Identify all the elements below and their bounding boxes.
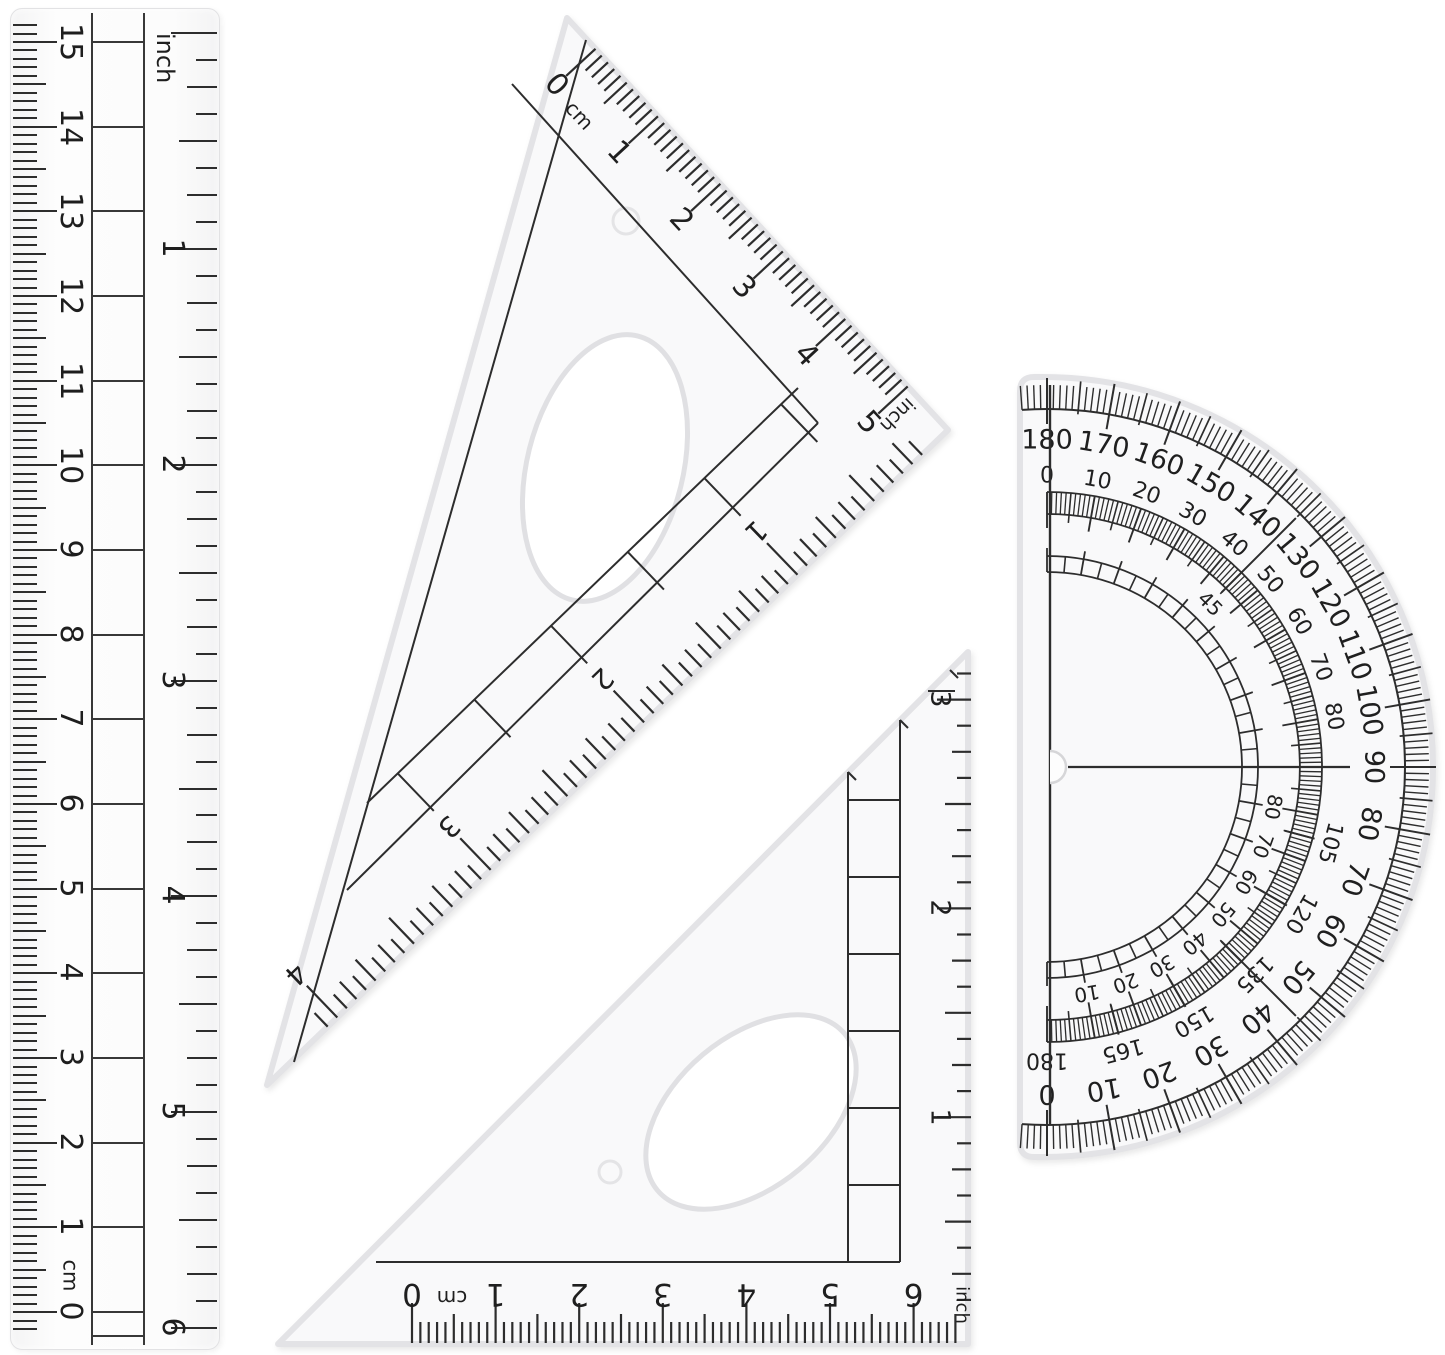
inner-degree: 10 [1082, 466, 1114, 495]
inch-unit-label: inch [952, 1286, 973, 1324]
cm-number: 5 [820, 1276, 840, 1312]
innermost-degree: 80 [1259, 792, 1287, 821]
cm-number: 2 [569, 1276, 589, 1312]
outer-degree: 180 [1021, 425, 1073, 456]
inch-number: 1 [925, 1108, 956, 1125]
tick [1034, 1125, 1035, 1149]
tick [1056, 1020, 1057, 1042]
inner-degree: 0 [1040, 464, 1054, 489]
tick [1300, 757, 1322, 758]
outer-degree: 0 [1038, 1079, 1055, 1110]
cm-number: 6 [904, 1276, 924, 1312]
cm-number: 3 [653, 1276, 673, 1312]
shapes-layer: 0cm123451234inch 0cm123456123inch 180170… [0, 0, 1445, 1355]
tick [1059, 1125, 1060, 1149]
inch-number: 3 [925, 690, 956, 707]
tick [1056, 492, 1057, 514]
inner-degree: 180 [1026, 1048, 1068, 1073]
cm-unit-label: cm [437, 1286, 467, 1310]
inner-degree: 80 [1319, 701, 1348, 733]
cm-number: 4 [737, 1276, 757, 1312]
tick [1300, 776, 1322, 777]
tick [1059, 385, 1060, 409]
protractor-180: 1801701601501401301201101009080706050403… [1020, 377, 1436, 1157]
tick [1405, 779, 1429, 780]
outer-degree: 80 [1351, 804, 1387, 843]
geometry-set-photo: 1514131211109876543210cm123456inch 0cm12… [0, 0, 1445, 1355]
outer-degree: 10 [1084, 1071, 1123, 1107]
tick [1405, 754, 1429, 755]
innermost-degree: 10 [1072, 979, 1101, 1007]
inch-number: 2 [925, 899, 956, 916]
tick [1034, 385, 1035, 409]
outer-degree: 90 [1359, 750, 1390, 784]
cm-number: 1 [486, 1276, 506, 1312]
cm-zero: 0 [402, 1276, 422, 1312]
